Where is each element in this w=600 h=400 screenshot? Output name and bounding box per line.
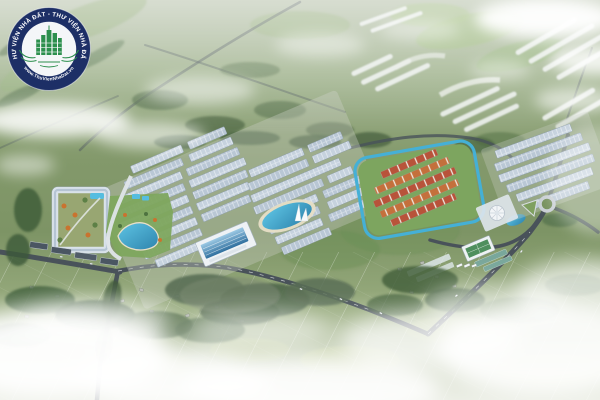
park-planting [158, 238, 162, 242]
park-planting [153, 218, 157, 222]
pool [142, 196, 149, 201]
apartment-complex [52, 187, 111, 254]
park-planting [118, 224, 122, 228]
fog [425, 283, 565, 327]
park-planting [144, 212, 148, 216]
tower-center [47, 30, 52, 55]
fog [190, 312, 330, 348]
tree-cluster [14, 188, 42, 232]
park-planting [123, 213, 127, 217]
cloud [275, 33, 365, 57]
pool [132, 194, 140, 199]
cloud [380, 20, 460, 40]
car [60, 256, 63, 258]
cloud [95, 122, 205, 148]
courtyard-planting [73, 213, 78, 218]
tower-right-2 [58, 38, 62, 55]
dome-cap [495, 211, 499, 215]
courtyard-planting [66, 226, 71, 231]
fog [10, 298, 170, 342]
aerial-masterplan-render: THƯ VIỆN NHÀ ĐẤT - THƯ VIỆN NHÀ ĐẤT ★ ww… [0, 0, 600, 400]
cloud [470, 61, 530, 79]
courtyard-planting [92, 222, 97, 227]
courtyard-planting [86, 233, 91, 238]
courtyard-planting [82, 197, 87, 202]
car [90, 263, 93, 265]
courtyard-planting [62, 204, 67, 209]
cloud [145, 76, 255, 104]
apartment-pool [90, 193, 104, 199]
tree-cluster [6, 234, 30, 266]
scene-canvas: THƯ VIỆN NHÀ ĐẤT - THƯ VIỆN NHÀ ĐẤT ★ ww… [0, 0, 600, 400]
